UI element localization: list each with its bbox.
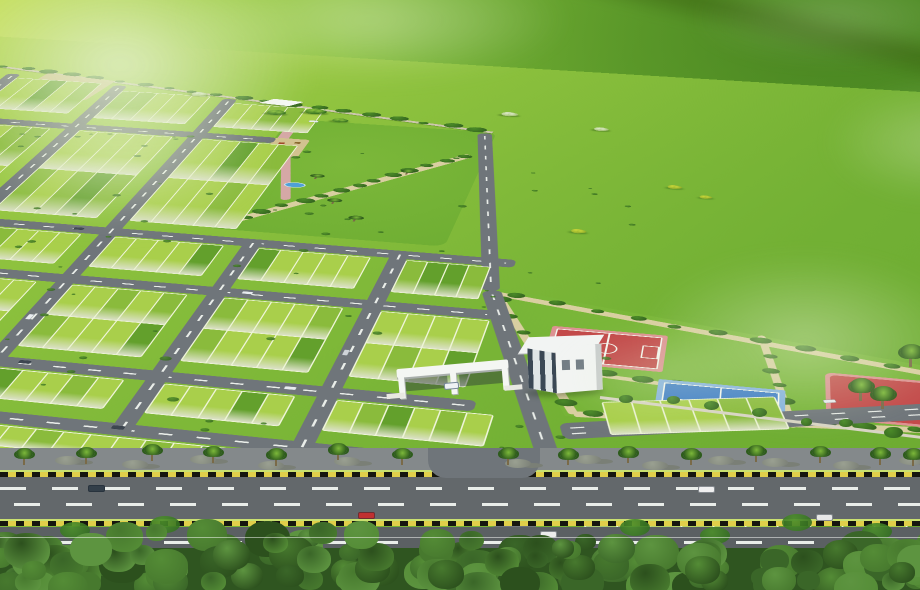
forest-tree <box>344 521 378 548</box>
palm-tree <box>905 448 920 460</box>
forest-tree <box>263 533 288 553</box>
bush <box>839 419 853 427</box>
rock-cluster <box>708 456 734 465</box>
gate-opening-shadow <box>403 375 448 392</box>
bush <box>704 401 719 410</box>
forest-tree <box>428 560 464 589</box>
palm-tree <box>268 448 285 460</box>
building-window <box>562 360 570 370</box>
bush <box>801 418 813 425</box>
rock-cluster <box>55 456 81 465</box>
lane-dashes <box>0 487 920 490</box>
palm-tree <box>872 447 889 459</box>
palm-tree <box>872 386 895 401</box>
palm-tree <box>560 448 577 460</box>
forest-tree <box>297 546 331 573</box>
rock-cluster <box>642 461 668 470</box>
forest-tree <box>797 571 820 590</box>
bush <box>667 396 680 404</box>
median-tree <box>782 514 812 531</box>
forest-tree <box>685 556 720 584</box>
median-tree <box>620 519 650 536</box>
palm-tree <box>900 344 920 359</box>
forest-tree <box>630 564 671 590</box>
forest-tree <box>146 524 167 541</box>
horizon-hairline <box>0 537 920 538</box>
palm-tree <box>330 443 347 455</box>
rock-cluster <box>833 461 859 470</box>
palm-tree <box>850 378 873 393</box>
forest-tree <box>762 567 796 590</box>
forest-tree <box>889 562 915 583</box>
carriageway <box>0 477 920 519</box>
forest-tree <box>201 572 226 590</box>
forest-tree <box>48 572 88 590</box>
rock-cluster <box>258 461 284 470</box>
lane-dashes <box>14 503 920 506</box>
rock-cluster <box>762 458 788 467</box>
rock-cluster <box>122 460 148 469</box>
building-facade-windows <box>527 348 557 393</box>
main-road-strip <box>0 0 920 590</box>
palm-tree <box>683 448 700 460</box>
forest-tree <box>500 567 540 590</box>
forest-tree <box>420 529 455 557</box>
car <box>816 514 833 521</box>
gate-opening-shadow <box>459 370 504 387</box>
car <box>358 512 375 519</box>
rock-cluster <box>575 455 601 464</box>
bush <box>884 427 903 438</box>
car <box>698 486 715 493</box>
car <box>88 485 105 492</box>
palm-tree <box>620 446 637 458</box>
forest-tree <box>309 522 337 544</box>
forest-tree <box>145 549 188 584</box>
forest-tree <box>459 531 484 551</box>
clubhouse-building <box>521 335 609 400</box>
scene <box>0 0 920 590</box>
building-window <box>576 359 584 369</box>
forest-tree <box>552 539 575 557</box>
forest-tree <box>22 561 46 580</box>
palm-tree <box>394 448 411 460</box>
palm-tree <box>500 447 517 459</box>
forest-tree <box>213 540 251 570</box>
car <box>444 382 460 390</box>
